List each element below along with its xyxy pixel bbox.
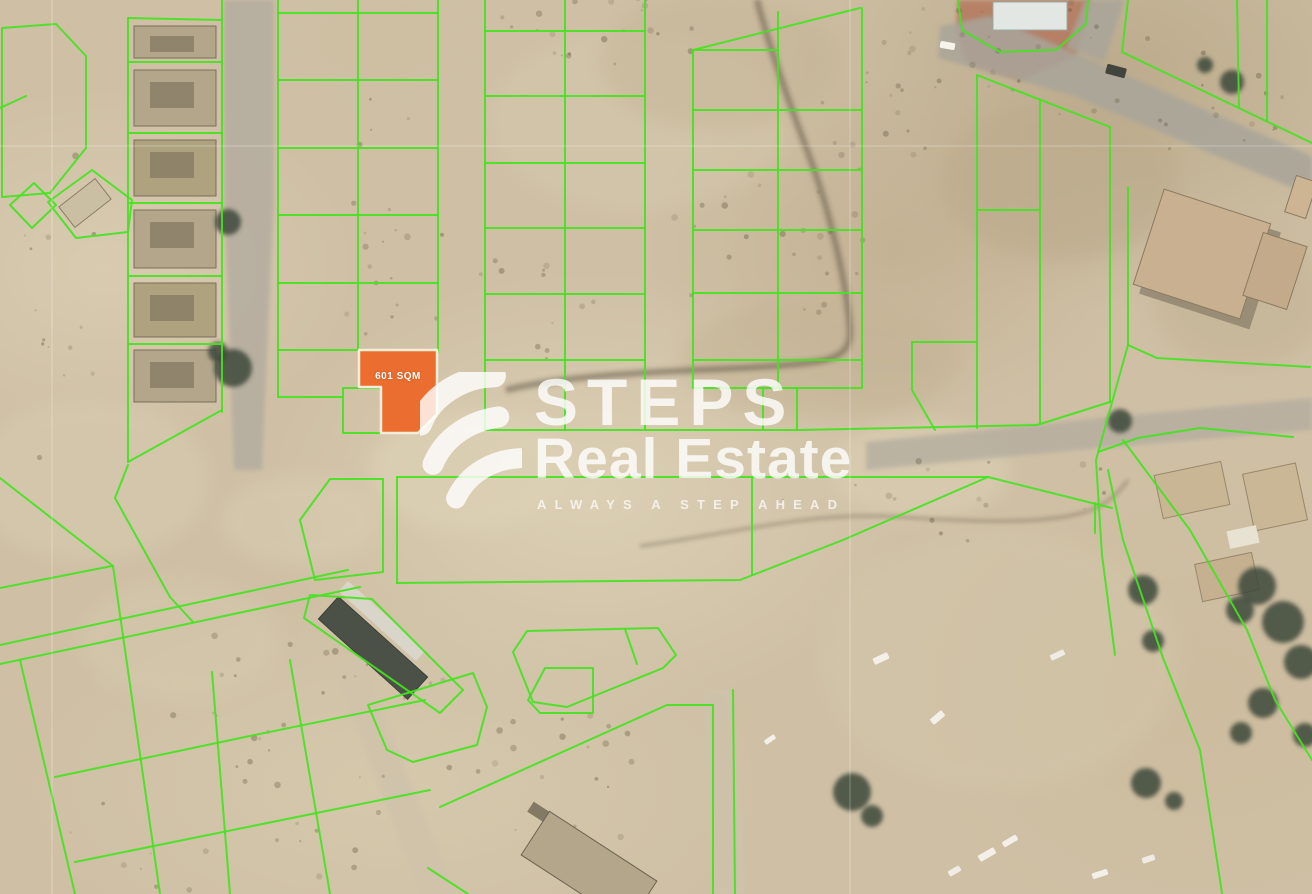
plot-area-label: 601 SQM [364,371,432,382]
highlighted-plot[interactable] [359,350,437,433]
satellite-map[interactable]: 601 SQM STEPS Real Estate ALWAYS A STEP … [0,0,1312,894]
satellite-map-canvas [0,0,1312,894]
